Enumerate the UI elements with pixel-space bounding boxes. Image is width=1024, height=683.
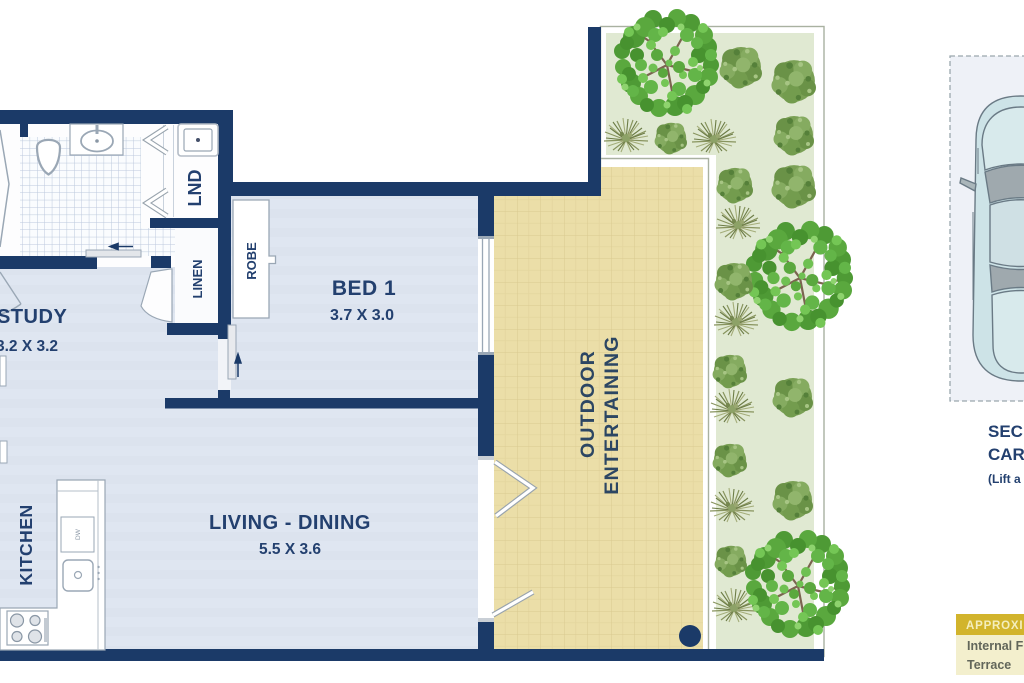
svg-text:ROBE: ROBE xyxy=(244,242,259,280)
svg-text:LIVING - DINING: LIVING - DINING xyxy=(209,512,371,534)
svg-text:CAR S: CAR S xyxy=(988,445,1024,464)
svg-text:3.7 X 3.0: 3.7 X 3.0 xyxy=(330,307,394,324)
svg-text:OUTDOOR: OUTDOOR xyxy=(577,350,599,458)
svg-text:LND: LND xyxy=(185,170,205,207)
svg-text:Terrace: Terrace xyxy=(967,658,1011,672)
svg-text:3.2 X 3.2: 3.2 X 3.2 xyxy=(0,338,58,355)
svg-text:(Lift a: (Lift a xyxy=(988,472,1021,486)
svg-text:LINEN: LINEN xyxy=(190,260,205,299)
svg-text:KITCHEN: KITCHEN xyxy=(16,504,36,585)
svg-text:APPROXI: APPROXI xyxy=(966,620,1023,632)
svg-text:STUDY: STUDY xyxy=(0,306,67,328)
svg-text:Internal F: Internal F xyxy=(967,639,1024,653)
svg-text:DW: DW xyxy=(75,528,82,540)
svg-text:BED 1: BED 1 xyxy=(332,277,396,300)
svg-text:SECU: SECU xyxy=(988,422,1024,441)
svg-text:5.5 X 3.6: 5.5 X 3.6 xyxy=(259,541,321,558)
svg-text:ENTERTAINING: ENTERTAINING xyxy=(601,335,623,494)
